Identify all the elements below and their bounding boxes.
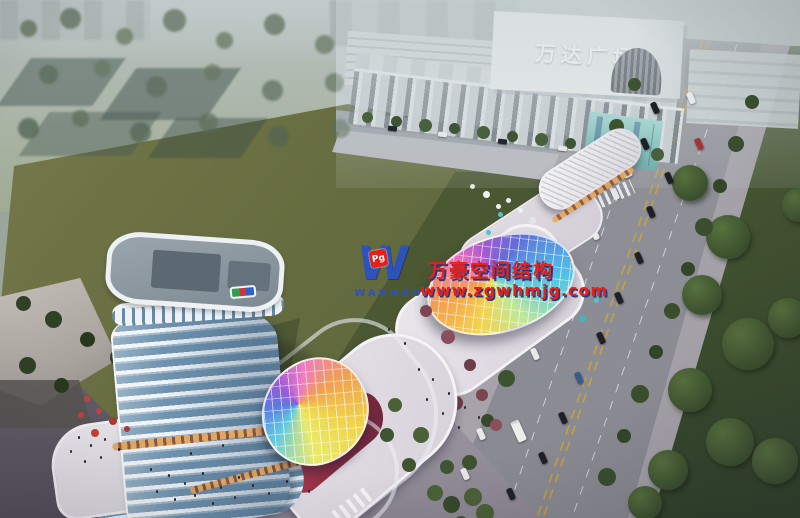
park-tree	[722, 318, 774, 370]
watermark: W Pg WANHAO 万豪空间结构 www.zgwhmjg.com	[358, 244, 578, 314]
park-tree	[672, 165, 708, 201]
vehicle	[558, 145, 568, 151]
park-tree	[628, 486, 662, 518]
street-tree-cluster	[388, 398, 402, 412]
pedestrians	[150, 468, 152, 471]
avenue-tree-row-left	[628, 78, 641, 91]
red-umbrella-cluster	[84, 396, 90, 402]
tower-brand-logo	[230, 285, 257, 299]
watermark-logo-badge-icon: Pg	[369, 249, 389, 269]
park-tree	[648, 450, 688, 490]
vehicle	[438, 131, 448, 137]
watermark-logo-name: WANHAO	[350, 288, 428, 299]
park-tree	[668, 368, 712, 412]
rooftop-plant-room	[151, 250, 221, 293]
warehouse-front-face	[0, 380, 92, 428]
park-tree	[706, 215, 750, 259]
white-umbrella-cluster	[506, 198, 511, 203]
pedestrians	[78, 436, 80, 439]
mall-road-tree-row	[362, 112, 373, 123]
park-tree	[752, 438, 798, 484]
distant-tree-cluster	[20, 20, 37, 37]
watermark-company-text: 万豪空间结构	[428, 256, 554, 283]
park-tree	[682, 275, 722, 315]
mall-east-wing	[686, 49, 800, 129]
pedestrians	[418, 368, 420, 371]
aerial-rendering: 万达广场	[0, 0, 800, 518]
warehouse-tree-row	[16, 296, 31, 311]
vehicle	[388, 125, 398, 131]
vehicle	[498, 138, 508, 144]
watermark-url-text: www.zgwhmjg.com	[420, 281, 608, 300]
avenue-tree-row-right	[745, 95, 759, 109]
teal-umbrella-cluster	[498, 212, 503, 217]
park-tree	[768, 298, 800, 338]
park-tree	[706, 418, 754, 466]
